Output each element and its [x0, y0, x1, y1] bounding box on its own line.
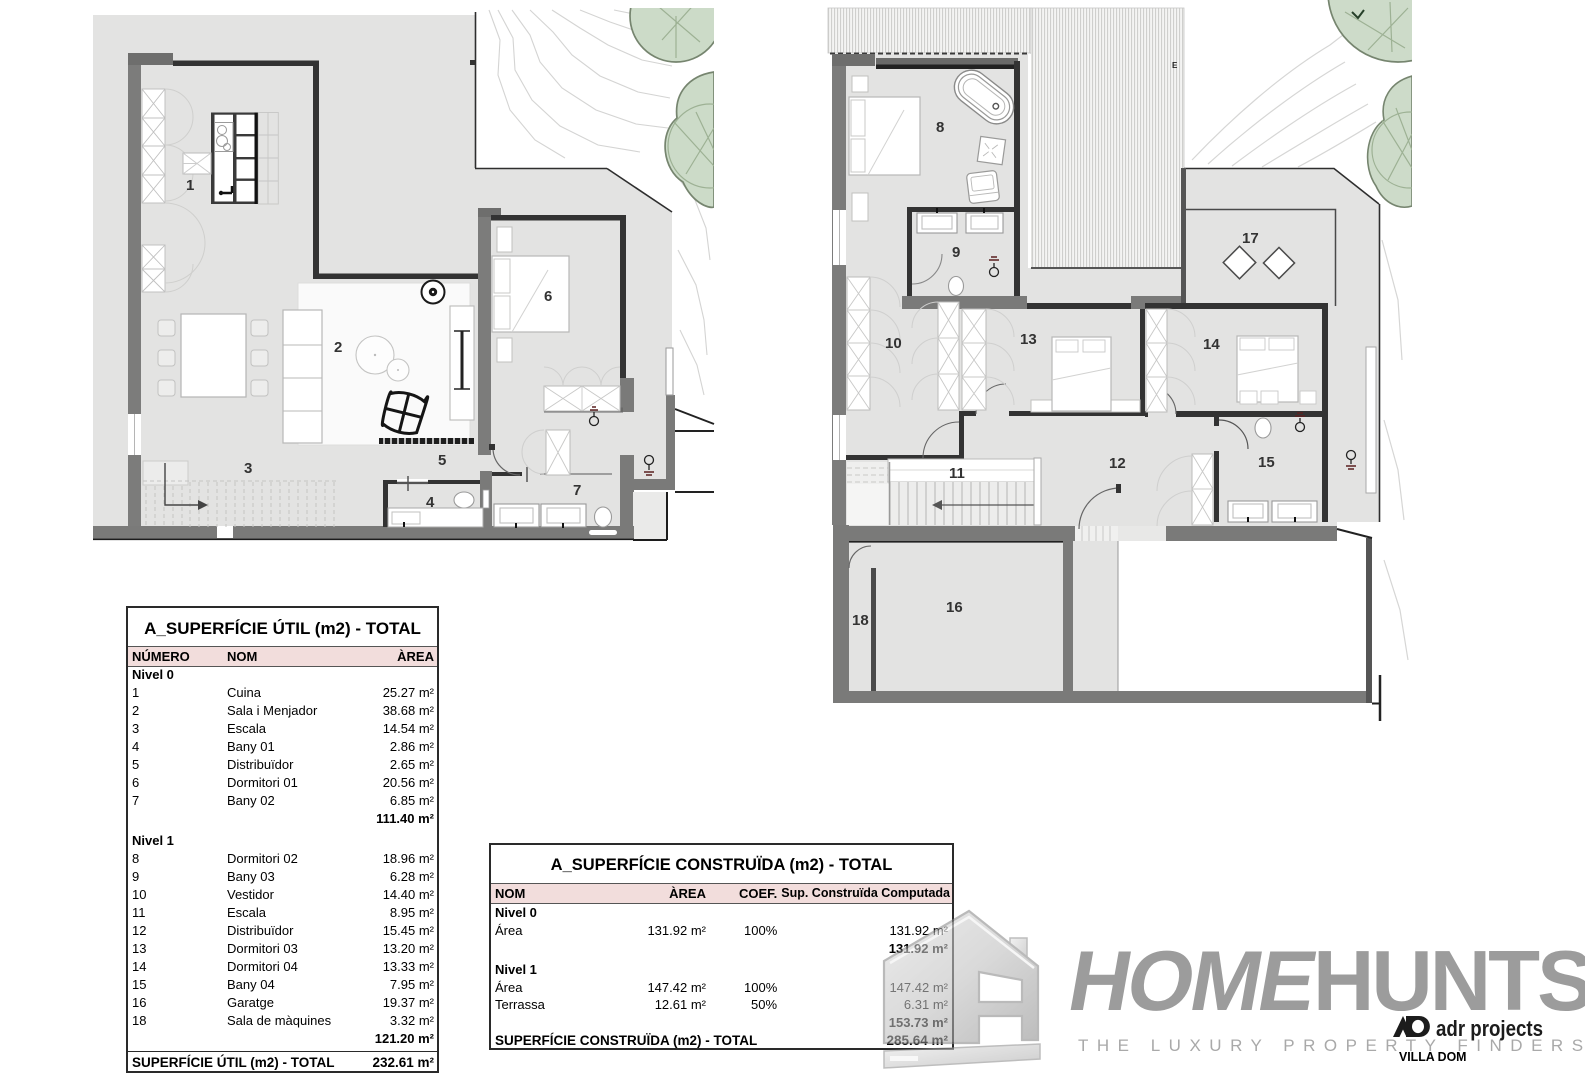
- svg-text:6: 6: [544, 288, 552, 305]
- svg-text:13: 13: [1020, 331, 1037, 348]
- svg-text:18: 18: [852, 612, 869, 629]
- svg-text:1: 1: [186, 177, 194, 194]
- svg-text:12: 12: [1109, 455, 1126, 472]
- svg-text:8: 8: [936, 119, 944, 136]
- svg-text:16: 16: [946, 599, 963, 616]
- svg-text:2: 2: [334, 339, 342, 356]
- svg-text:E: E: [1172, 61, 1178, 70]
- svg-text:17: 17: [1242, 230, 1259, 247]
- svg-text:4: 4: [426, 494, 435, 511]
- svg-text:10: 10: [885, 335, 902, 352]
- svg-text:5: 5: [438, 452, 446, 469]
- svg-text:11: 11: [949, 465, 965, 482]
- svg-text:9: 9: [952, 244, 960, 261]
- svg-text:3: 3: [244, 460, 252, 477]
- svg-text:14: 14: [1203, 336, 1220, 353]
- svg-text:7: 7: [573, 482, 581, 499]
- svg-text:15: 15: [1258, 454, 1275, 471]
